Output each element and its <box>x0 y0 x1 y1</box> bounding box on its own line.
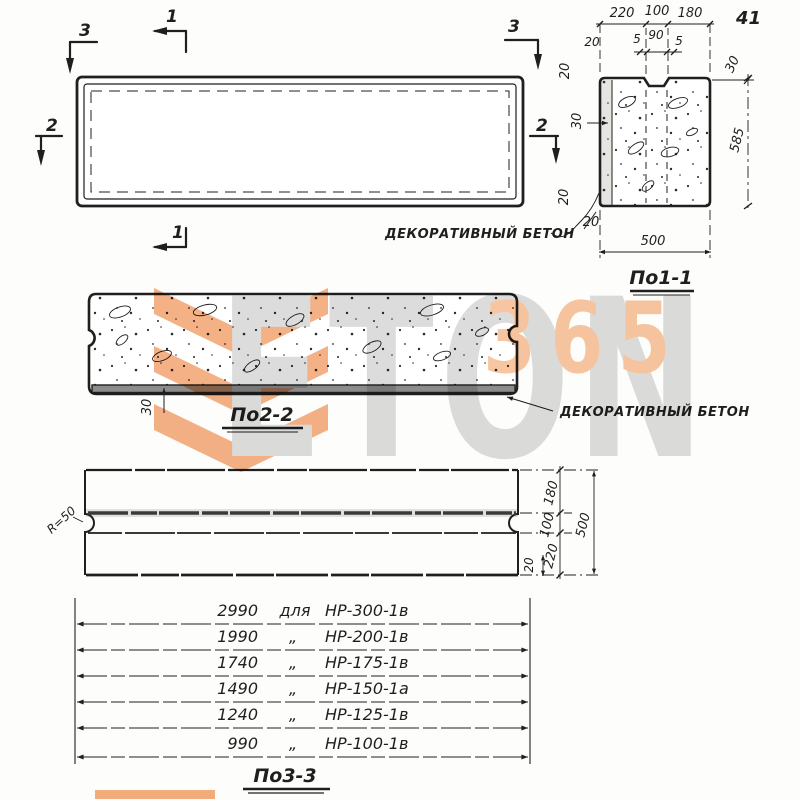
row-length: 1740 <box>217 653 258 672</box>
section-3-3: R=50 180 100 220 500 20 <box>44 466 602 579</box>
row-sep: для <box>279 601 311 620</box>
row-length: 1240 <box>217 705 258 724</box>
row-mark: НР-100-1в <box>325 734 408 753</box>
marker-1-bottom: 1 <box>172 223 184 243</box>
cut-arrow-down <box>534 54 542 70</box>
dim-90: 90 <box>648 28 664 42</box>
dim-180: 180 <box>678 6 703 21</box>
row-mark: НР-200-1в <box>325 627 408 646</box>
row-sep: „ <box>289 653 297 672</box>
dim-20-groove: 20 <box>584 35 600 49</box>
marker-2-left: 2 <box>46 116 58 136</box>
dim-500-width: 500 <box>641 234 666 249</box>
dim-30-notch: 30 <box>723 54 744 75</box>
panel-outline <box>89 294 517 394</box>
plan-outline <box>77 77 523 206</box>
blueprint-canvas: 3 3 1 1 2 2 <box>0 0 800 800</box>
dim-5-left: 5 <box>633 32 641 46</box>
row-mark: НР-175-1в <box>325 653 408 672</box>
row-mark: НР-150-1а <box>325 679 409 698</box>
length-dimension-table: 2990 для НР-300-1в 1990 „ НР-200-1в 1740… <box>75 598 530 793</box>
left-edge <box>85 470 94 575</box>
leader-line <box>507 397 553 411</box>
dim-100: 100 <box>645 4 670 19</box>
row-sep: „ <box>289 679 297 698</box>
dim-20-left-bottom: 20 <box>557 189 572 206</box>
dim-radius: R=50 <box>44 503 79 536</box>
plan-view <box>77 77 523 206</box>
dim-180: 180 <box>541 479 562 507</box>
section-1-title: По1-1 <box>629 267 692 289</box>
dim-500-height: 500 <box>573 511 594 539</box>
cut-arrow-left <box>152 243 167 251</box>
cut-arrow-down <box>552 148 560 164</box>
row-length: 990 <box>227 734 258 753</box>
dim-20-offset: 20 <box>522 557 536 573</box>
dim-220: 220 <box>541 542 562 570</box>
dim-30-base: 30 <box>140 399 155 416</box>
decorative-layer-strip <box>92 385 515 393</box>
cut-arrow-left <box>152 27 167 35</box>
technical-drawing: 3 3 1 1 2 2 <box>0 0 800 800</box>
cut-arrow-down <box>66 58 74 74</box>
row-sep: „ <box>289 627 297 646</box>
section-block-outline <box>600 78 710 206</box>
right-edge <box>509 470 518 575</box>
row-mark: НР-125-1в <box>325 705 408 724</box>
dim-30-left: 30 <box>570 113 585 130</box>
marker-3-top-right: 3 <box>508 17 520 37</box>
marker-2-right: 2 <box>536 116 548 136</box>
section-3-title: По3-3 <box>253 765 316 787</box>
decorative-concrete-note-top: ДЕКОРАТИВНЫЙ БЕТОН <box>384 226 575 242</box>
cut-arrow-down <box>37 150 45 166</box>
dim-100: 100 <box>537 511 558 539</box>
row-length: 1990 <box>217 627 258 646</box>
row-length: 1490 <box>217 679 258 698</box>
row-sep: „ <box>289 705 297 724</box>
section-2-title: По2-2 <box>230 404 293 426</box>
dim-220: 220 <box>610 6 635 21</box>
page-number: 41 <box>735 8 761 29</box>
marker-1-top: 1 <box>166 7 178 27</box>
dim-585: 585 <box>727 126 748 154</box>
row-length: 2990 <box>217 601 258 620</box>
marker-3-top-left: 3 <box>79 21 91 41</box>
section-2-2: 30 По2-2 ДЕКОРАТИВНЫЙ БЕТОН <box>89 294 750 432</box>
row-mark: НР-300-1в <box>325 601 408 620</box>
row-sep: „ <box>289 734 297 753</box>
dim-5-right: 5 <box>675 34 683 48</box>
dim-20-left-top: 20 <box>558 63 573 80</box>
decorative-concrete-note-mid: ДЕКОРАТИВНЫЙ БЕТОН <box>559 404 750 420</box>
